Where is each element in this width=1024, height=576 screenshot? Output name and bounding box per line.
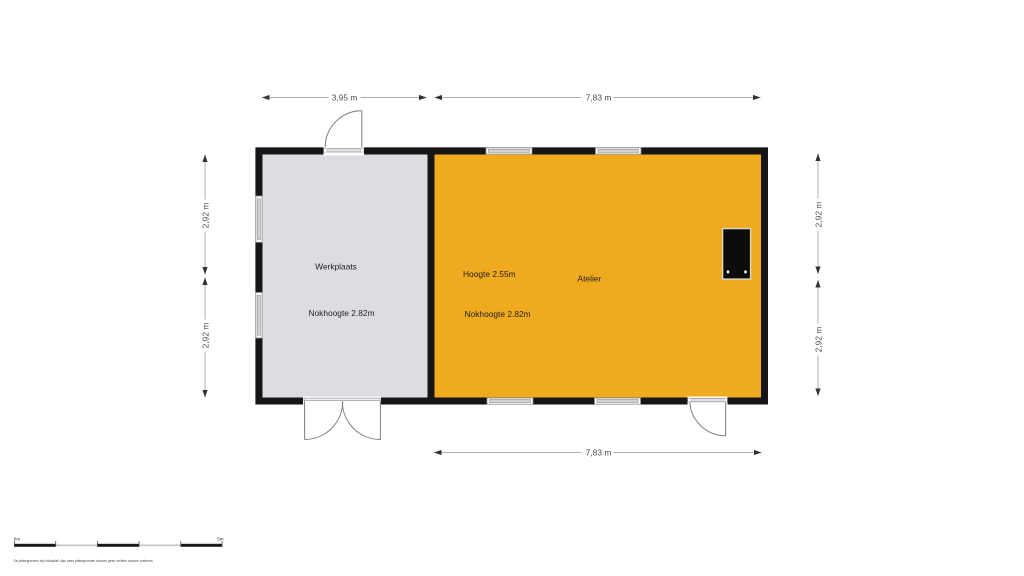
svg-text:Nokhoogte 2.82m: Nokhoogte 2.82m bbox=[465, 309, 531, 319]
svg-text:Werkplaats: Werkplaats bbox=[315, 262, 357, 272]
svg-text:2,92 m: 2,92 m bbox=[201, 203, 211, 229]
svg-text:0m: 0m bbox=[14, 537, 21, 542]
svg-text:2,92 m: 2,92 m bbox=[814, 327, 824, 353]
svg-text:7,83 m: 7,83 m bbox=[586, 93, 612, 103]
svg-text:Nokhoogte 2.82m: Nokhoogte 2.82m bbox=[308, 308, 374, 318]
svg-text:Atelier: Atelier bbox=[578, 273, 602, 283]
svg-text:2,92 m: 2,92 m bbox=[201, 323, 211, 349]
svg-text:7,83 m: 7,83 m bbox=[586, 448, 612, 458]
svg-text:2,92 m: 2,92 m bbox=[814, 202, 824, 228]
svg-text:De plattegronden zijn indicati: De plattegronden zijn indicatief. Aan de… bbox=[14, 559, 154, 563]
svg-text:Hoogte 2.55m: Hoogte 2.55m bbox=[463, 269, 516, 279]
svg-text:5m: 5m bbox=[217, 537, 224, 542]
svg-text:3,95 m: 3,95 m bbox=[332, 93, 358, 103]
